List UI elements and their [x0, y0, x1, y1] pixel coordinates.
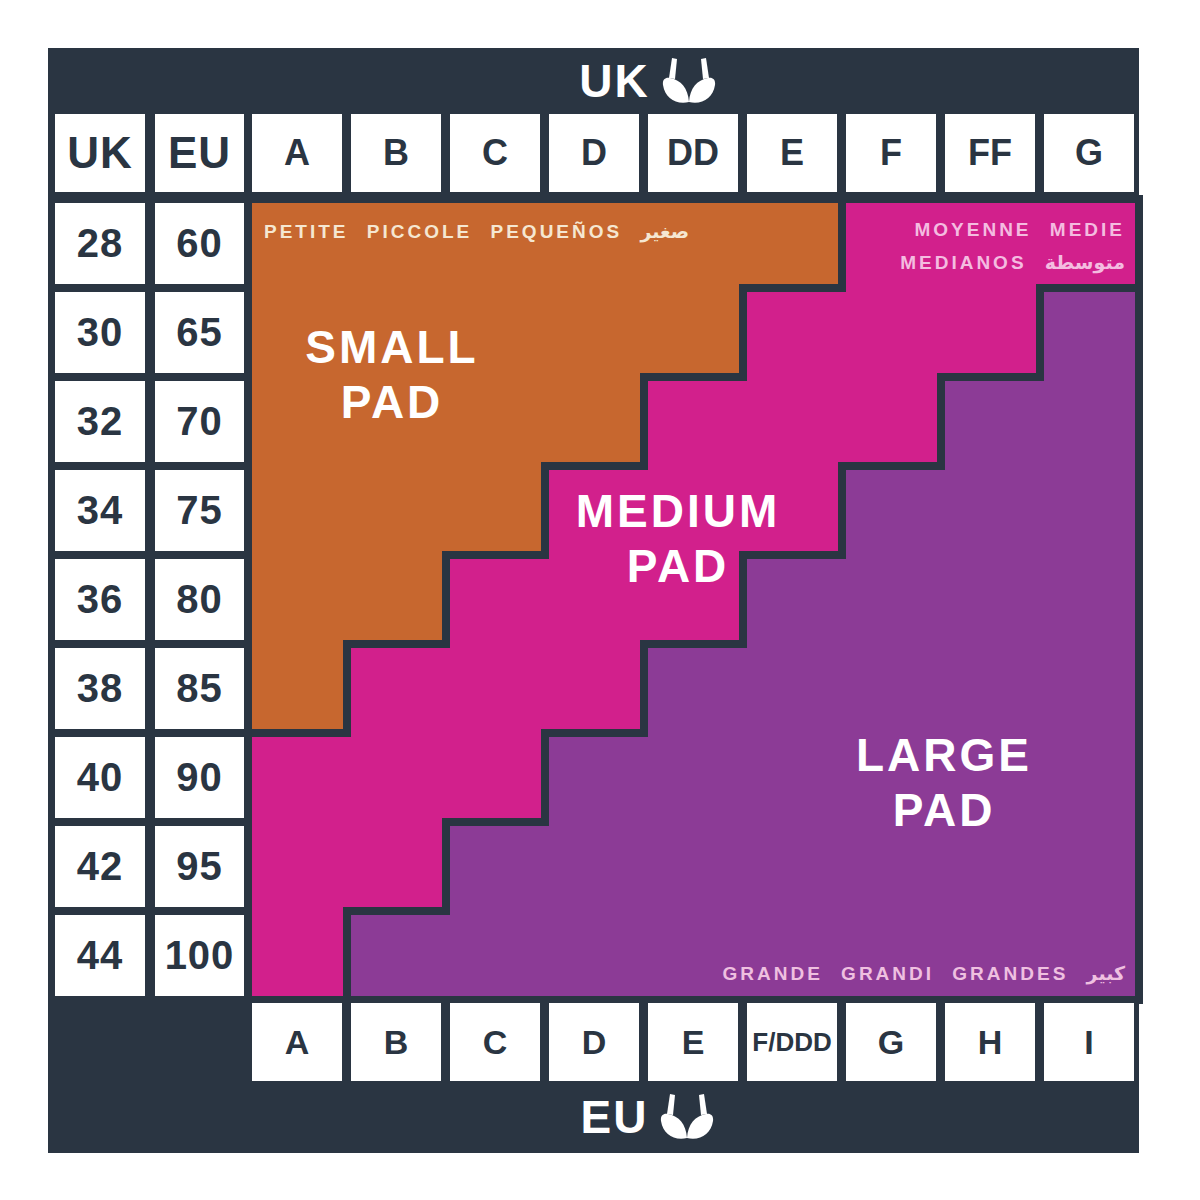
eu-cup-a: A	[252, 1003, 342, 1081]
uk-band-30: 30	[55, 292, 145, 373]
uk-band-40: 40	[55, 737, 145, 818]
eu-title-group: EU	[48, 1081, 1139, 1153]
uk-title-group: UK	[48, 48, 1139, 114]
header-uk-cup-a: A	[252, 114, 342, 192]
eu-band-60: 60	[155, 203, 244, 284]
uk-band-42: 42	[55, 826, 145, 907]
uk-band-28: 28	[55, 203, 145, 284]
eu-band-65: 65	[155, 292, 244, 373]
header-uk-cup-ff: FF	[945, 114, 1035, 192]
uk-band-34: 34	[55, 470, 145, 551]
header-uk-cup-e: E	[747, 114, 837, 192]
header-uk-cup-f: F	[846, 114, 936, 192]
eu-title-label: EU	[581, 1094, 649, 1140]
eu-band-100: 100	[155, 915, 244, 996]
header-eu-band: EU	[155, 114, 244, 192]
uk-band-32: 32	[55, 381, 145, 462]
header-uk-cup-d: D	[549, 114, 639, 192]
eu-cup-i: I	[1044, 1003, 1134, 1081]
pad-regions-staircase	[244, 195, 1143, 1004]
eu-band-80: 80	[155, 559, 244, 640]
eu-cup-h: H	[945, 1003, 1035, 1081]
header-uk-cup-c: C	[450, 114, 540, 192]
uk-band-36: 36	[55, 559, 145, 640]
header-uk-cup-dd: DD	[648, 114, 738, 192]
eu-band-95: 95	[155, 826, 244, 907]
uk-title-label: UK	[579, 58, 649, 104]
eu-band-90: 90	[155, 737, 244, 818]
eu-cup-g: G	[846, 1003, 936, 1081]
header-uk-cup-g: G	[1044, 114, 1134, 192]
uk-band-44: 44	[55, 915, 145, 996]
eu-band-70: 70	[155, 381, 244, 462]
eu-band-75: 75	[155, 470, 244, 551]
eu-cup-c: C	[450, 1003, 540, 1081]
uk-band-38: 38	[55, 648, 145, 729]
bra-pad-size-chart: UK EU	[0, 0, 1200, 1200]
header-uk-band: UK	[55, 114, 145, 192]
header-uk-cup-b: B	[351, 114, 441, 192]
eu-cup-f-ddd: F/DDD	[747, 1003, 837, 1081]
bra-icon	[660, 1094, 714, 1140]
eu-band-85: 85	[155, 648, 244, 729]
bra-icon	[662, 58, 716, 104]
eu-cup-b: B	[351, 1003, 441, 1081]
eu-cup-d: D	[549, 1003, 639, 1081]
bottom-title-bar: EU	[48, 1081, 1139, 1153]
eu-cup-e: E	[648, 1003, 738, 1081]
